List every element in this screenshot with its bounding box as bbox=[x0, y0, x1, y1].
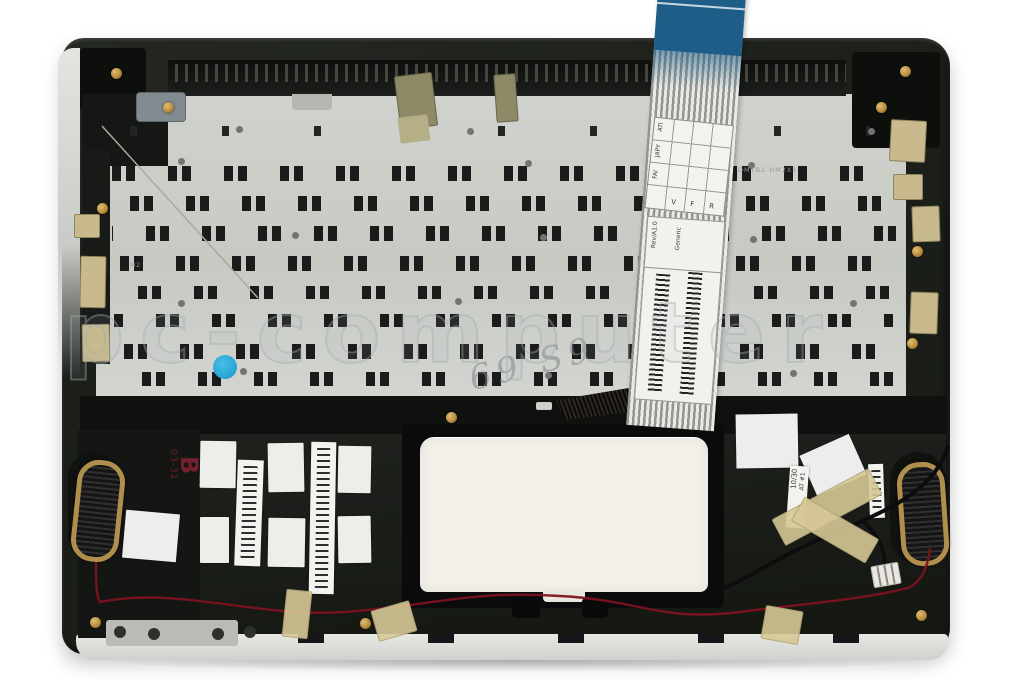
foam-pad bbox=[909, 292, 938, 335]
etched-plate-mark: M2 bbox=[130, 262, 141, 269]
kapton-tape-tip bbox=[398, 114, 431, 143]
blue-dot-sticker bbox=[213, 355, 237, 379]
brass-screw bbox=[907, 338, 918, 349]
barcode bbox=[679, 272, 702, 397]
brass-screw bbox=[446, 412, 457, 423]
key-slot-row bbox=[112, 196, 896, 211]
key-slot-row bbox=[112, 314, 896, 327]
right-speaker bbox=[895, 460, 950, 567]
date-label-text: 10/30 bbox=[790, 468, 799, 489]
station-label-text: AT #1 bbox=[798, 472, 806, 491]
touchpad-mount-block bbox=[512, 596, 540, 618]
rim-notch bbox=[833, 634, 859, 643]
adhesive-pad bbox=[200, 517, 229, 563]
cable-barcode-label: Rev/A1.0 Generic bbox=[634, 216, 725, 405]
qc-grid-sticker: ATI JAPY FAI V F R bbox=[644, 117, 733, 217]
brass-screw bbox=[97, 203, 108, 214]
cable-rev-text: Rev/A1.0 bbox=[650, 221, 659, 248]
brass-screw bbox=[360, 618, 371, 629]
foam-pad bbox=[82, 324, 111, 362]
brass-screw bbox=[90, 617, 101, 628]
adhesive-pad bbox=[268, 518, 306, 568]
touchpad-tab bbox=[543, 589, 585, 602]
touchpad-mount-block bbox=[582, 598, 608, 618]
foam-pad bbox=[74, 214, 100, 238]
etched-plate-code: DMTB2 HM2X1 bbox=[738, 166, 797, 174]
plate-mount-tab bbox=[292, 94, 332, 110]
red-stamp-sub: 03-31 bbox=[168, 429, 177, 501]
foam-pad bbox=[889, 119, 927, 163]
grid-col-text: ATI bbox=[657, 122, 665, 132]
adhesive-pad bbox=[338, 446, 372, 494]
rubber-bumper bbox=[136, 92, 186, 122]
grid-row-text: F bbox=[690, 200, 695, 208]
adhesive-pad bbox=[268, 443, 305, 493]
barcode bbox=[315, 448, 330, 588]
barcode bbox=[648, 274, 671, 393]
masking-tape bbox=[282, 589, 313, 639]
foam-pad bbox=[893, 174, 923, 200]
white-label bbox=[122, 510, 180, 563]
adhesive-pad bbox=[200, 441, 237, 489]
cable-name-text: Generic bbox=[674, 227, 683, 251]
red-stamp-main: B bbox=[177, 429, 201, 501]
rim-notch bbox=[558, 634, 584, 643]
red-ink-stamp: B 03-31 bbox=[127, 429, 201, 501]
grid-col-text: JAPY bbox=[654, 144, 662, 158]
brass-screw bbox=[876, 102, 887, 113]
kapton-tape bbox=[493, 73, 518, 122]
barcode bbox=[240, 466, 257, 560]
foam-pad bbox=[911, 206, 940, 243]
bracket-screws bbox=[114, 626, 126, 638]
rim-notch bbox=[698, 634, 724, 643]
grid-row-text: R bbox=[709, 202, 715, 210]
key-slot-row bbox=[112, 226, 896, 241]
rim-notch bbox=[428, 634, 454, 643]
grid-row-text: V bbox=[671, 198, 677, 206]
masking-tape bbox=[760, 605, 803, 645]
brass-screw bbox=[163, 102, 174, 113]
key-slot-row bbox=[112, 286, 896, 299]
cable-blue-fade bbox=[651, 50, 741, 92]
barcode-strip-label bbox=[309, 442, 337, 594]
cable-label-header: Rev/A1.0 Generic bbox=[645, 217, 725, 273]
product-photo-stage: DMTB2 HM2X1 M2 69 S9 B 03-31 10/30 AT #1 bbox=[0, 0, 1024, 680]
white-label bbox=[736, 413, 799, 468]
grid-col-text: FAI bbox=[652, 170, 660, 179]
brass-screw bbox=[912, 246, 923, 257]
brass-screw bbox=[916, 610, 927, 621]
foam-pad bbox=[80, 256, 107, 308]
adhesive-pad bbox=[338, 516, 372, 564]
key-slot-row bbox=[112, 256, 896, 271]
frame-tab bbox=[536, 402, 552, 410]
brass-screw bbox=[900, 66, 911, 77]
barcode-strip-label bbox=[234, 460, 264, 567]
plate-screw-holes bbox=[236, 126, 243, 133]
left-aluminum-edge bbox=[58, 48, 80, 378]
brass-screw bbox=[111, 68, 122, 79]
touchpad-backside bbox=[420, 437, 708, 592]
